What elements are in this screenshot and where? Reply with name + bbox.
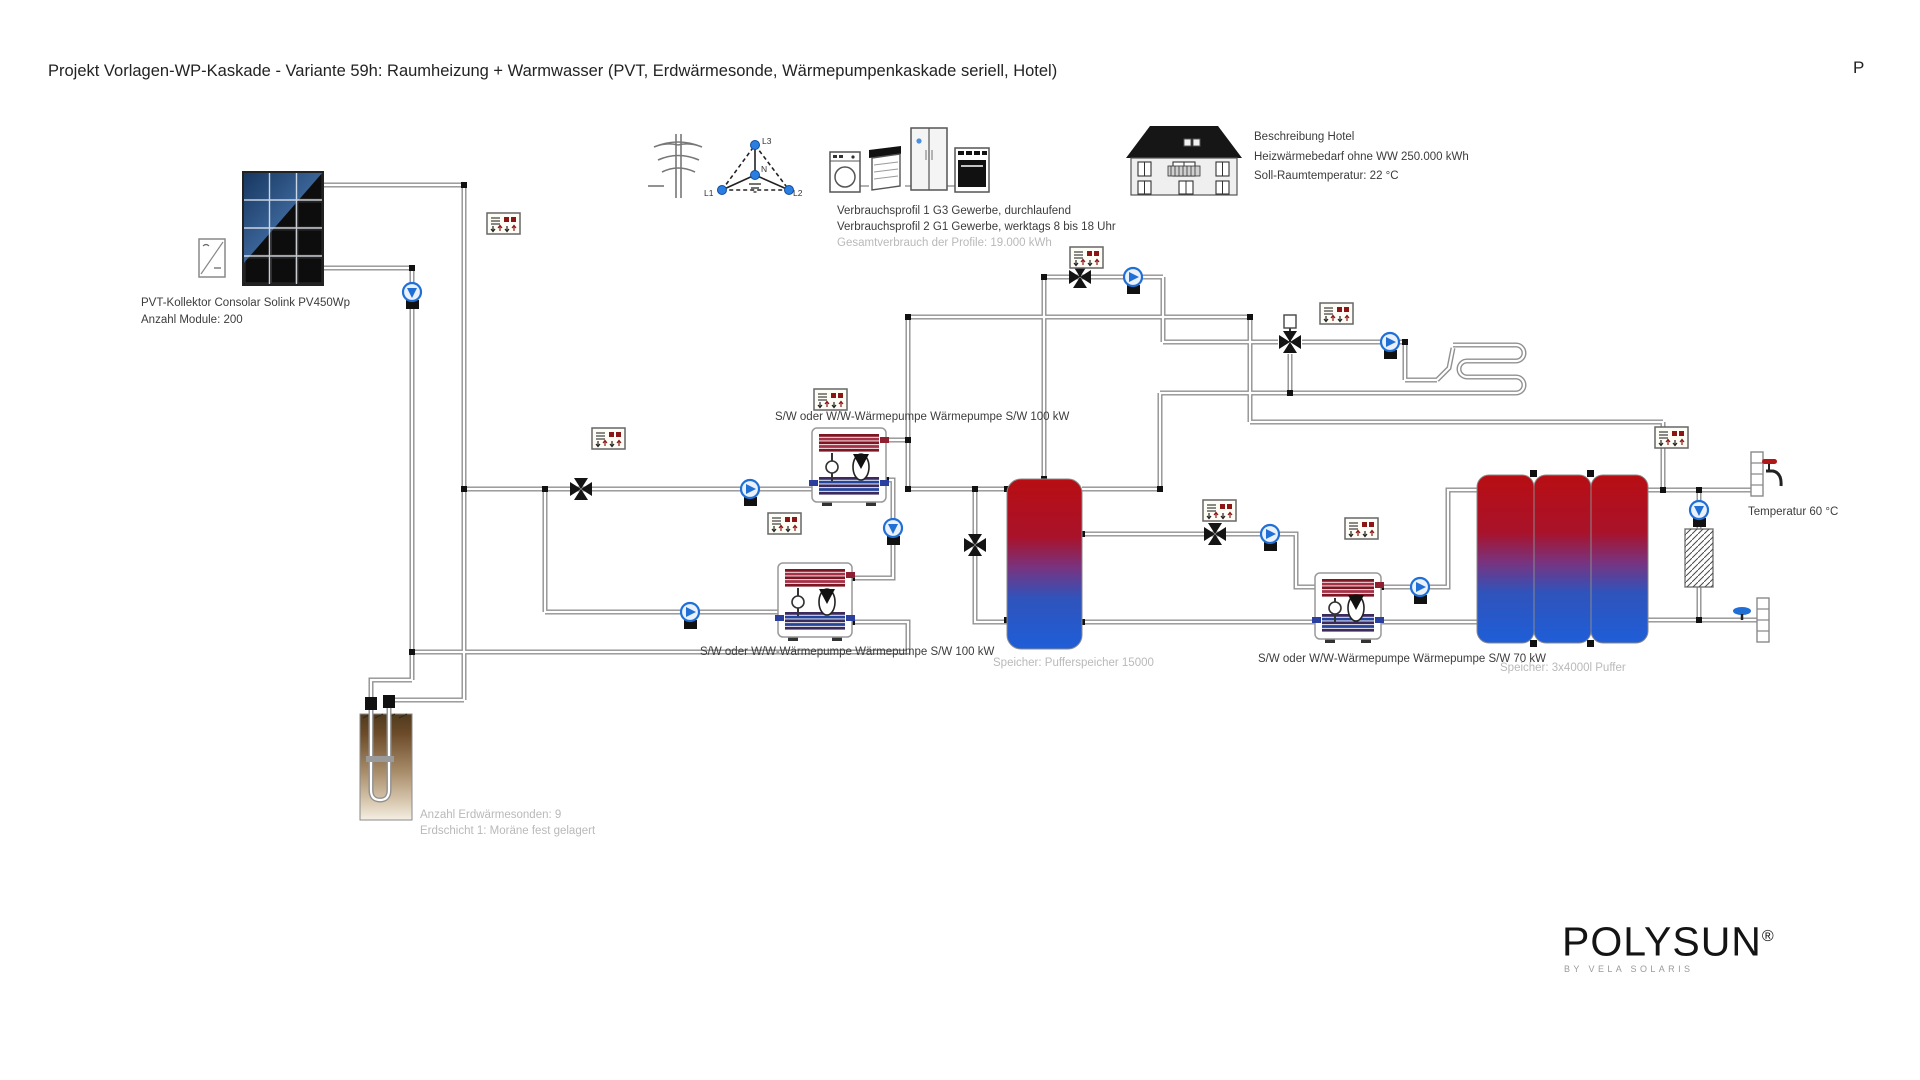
condenser-coil xyxy=(785,569,845,572)
evaporator-coil xyxy=(785,619,845,622)
dhw-temperature-label: Temperatur 60 °C xyxy=(1748,505,1838,520)
inverter-icon[interactable] xyxy=(199,239,225,277)
oven-icon[interactable] xyxy=(955,148,989,192)
controller-icon[interactable] xyxy=(1655,427,1688,448)
pipe-junction xyxy=(461,182,467,188)
pump-icon[interactable] xyxy=(1411,578,1429,604)
heat-pump-2-icon[interactable] xyxy=(775,563,855,641)
controller-icon[interactable] xyxy=(1320,303,1353,324)
tank2-label: Speicher: 3x4000l Puffer xyxy=(1500,661,1626,676)
evaporator-coil xyxy=(785,627,845,630)
consumption-profile-line2: Verbrauchsprofil 2 G1 Gewerbe, werktags … xyxy=(837,220,1116,235)
evaporator-coil xyxy=(1322,614,1374,617)
pump-icon[interactable] xyxy=(681,603,699,629)
consumption-profile-line3: Gesamtverbrauch der Profile: 19.000 kWh xyxy=(837,236,1052,251)
pipe-junction xyxy=(1247,314,1253,320)
pipe-junction xyxy=(409,265,415,271)
pipe-core xyxy=(1082,534,1315,587)
pv-cell xyxy=(298,230,322,255)
evaporator-coil xyxy=(819,488,879,491)
hotel-building-icon[interactable] xyxy=(1126,126,1242,195)
pipe-junction xyxy=(1402,339,1408,345)
pump-icon[interactable] xyxy=(1381,333,1399,359)
borehole-label-line2: Erdschicht 1: Moräne fest gelagert xyxy=(420,824,595,839)
borehole-icon[interactable] xyxy=(360,714,412,820)
evaporator-coil xyxy=(785,612,845,615)
pump-icon[interactable] xyxy=(1124,268,1142,294)
controller-icon[interactable] xyxy=(1070,247,1103,268)
hotel-description-line1: Beschreibung Hotel xyxy=(1254,130,1354,145)
hot-water-tap-icon[interactable] xyxy=(1751,452,1781,496)
mixing-valve-icon[interactable] xyxy=(964,534,986,556)
heat-pump-1-label: S/W oder W/W-Wärmepumpe Wärmepumpe S/W 1… xyxy=(775,410,1069,425)
pipe-junction xyxy=(461,486,467,492)
mixing-valve-icon[interactable] xyxy=(1204,523,1226,545)
cold-valve-handle[interactable] xyxy=(1733,607,1751,615)
tank1-label: Speicher: Pufferspeicher 15000 xyxy=(993,656,1154,671)
pv-cell xyxy=(272,230,296,255)
controller-icon[interactable] xyxy=(592,428,625,449)
heat-pump-3-icon[interactable] xyxy=(1312,573,1384,643)
pump-icon[interactable] xyxy=(403,283,421,309)
borehole-fitting-left xyxy=(365,697,377,710)
consumption-profile-line1: Verbrauchsprofil 1 G3 Gewerbe, durchlauf… xyxy=(837,204,1071,219)
expansion-valve-icon xyxy=(792,596,804,608)
pipe-junction xyxy=(1287,390,1293,396)
controller-icon[interactable] xyxy=(768,513,801,534)
label-n: N xyxy=(761,164,767,174)
pipe-junction xyxy=(542,486,548,492)
borehole-label-line1: Anzahl Erdwärmesonden: 9 xyxy=(420,808,561,823)
condenser-coil xyxy=(819,438,879,441)
condenser-coil xyxy=(785,573,845,576)
pump-icon[interactable] xyxy=(741,480,759,506)
buffer-tank-3x4000-icon[interactable] xyxy=(1477,470,1648,647)
hot-tap-handle[interactable] xyxy=(1762,459,1777,464)
hotel-description-line3: Soll-Raumtemperatur: 22 °C xyxy=(1254,169,1399,184)
expansion-valve-icon xyxy=(826,461,838,473)
evaporator-coil xyxy=(819,492,879,495)
heat-pump-1-icon[interactable] xyxy=(809,428,889,506)
pv-cell xyxy=(298,202,322,227)
evaporator-coil xyxy=(785,616,845,619)
mixing-valve-icon[interactable] xyxy=(1279,315,1301,353)
borehole-fitting-right xyxy=(383,695,395,708)
pump-icon[interactable] xyxy=(1261,525,1279,551)
polysun-logo: POLYSUN® BY VELA SOLARIS xyxy=(1562,916,1775,974)
pipe-core xyxy=(1381,490,1477,587)
pvt-collector-icon[interactable] xyxy=(243,172,323,285)
pipe xyxy=(1443,345,1524,393)
pipe-junction xyxy=(1696,617,1702,623)
pipe-junction xyxy=(905,486,911,492)
grid-phase-triangle-icon[interactable]: L3 N L1 L2 xyxy=(704,136,803,198)
pipe-junction xyxy=(972,486,978,492)
evaporator-coil xyxy=(819,481,879,484)
evaporator-coil xyxy=(1322,625,1374,628)
controller-icon[interactable] xyxy=(487,213,520,234)
pipe-junction xyxy=(1696,487,1702,493)
pipe xyxy=(1381,490,1477,587)
pipe-junction xyxy=(905,437,911,443)
pump-icon[interactable] xyxy=(884,519,902,545)
pvt-label-line1: PVT-Kollektor Consolar Solink PV450Wp xyxy=(141,296,350,311)
fridge-icon[interactable] xyxy=(911,128,947,190)
evaporator-coil xyxy=(819,484,879,487)
condenser-coil xyxy=(785,584,845,587)
pipe-junction xyxy=(1660,487,1666,493)
heat-pump-2-label: S/W oder W/W-Wärmepumpe Wärmepumpe S/W 1… xyxy=(700,645,994,660)
expansion-valve-icon xyxy=(1329,602,1341,614)
borehole-clamp xyxy=(366,756,394,762)
pv-cell xyxy=(245,258,269,283)
label-l2: L2 xyxy=(793,188,803,198)
condenser-coil xyxy=(1322,583,1374,586)
balcony xyxy=(1168,166,1200,176)
pipe-junction xyxy=(1157,486,1163,492)
controller-icon[interactable] xyxy=(1345,518,1378,539)
mixing-valve-icon[interactable] xyxy=(570,478,592,500)
condenser-coil xyxy=(819,449,879,452)
power-grid-pylon-icon[interactable] xyxy=(648,134,702,198)
buffer-tank-15000-icon[interactable] xyxy=(1007,479,1082,649)
pipe-junction xyxy=(409,649,415,655)
pvt-label-line2: Anzahl Module: 200 xyxy=(141,313,243,328)
pump-icon[interactable] xyxy=(1690,501,1708,527)
condenser-coil xyxy=(819,441,879,444)
label-l1: L1 xyxy=(704,188,714,198)
evaporator-coil xyxy=(1322,621,1374,624)
hotel-description-line2: Heizwärmebedarf ohne WW 250.000 kWh xyxy=(1254,150,1469,165)
diagram-canvas: Projekt Vorlagen-WP-Kaskade - Variante 5… xyxy=(0,0,1920,1080)
washing-machine-icon[interactable] xyxy=(830,152,860,192)
evaporator-coil xyxy=(819,477,879,480)
evaporator-coil xyxy=(1322,629,1374,632)
condenser-coil xyxy=(1322,586,1374,589)
dishwasher-icon[interactable] xyxy=(869,146,901,190)
condenser-coil xyxy=(1322,579,1374,582)
condenser-coil xyxy=(819,445,879,448)
pipe xyxy=(1082,534,1315,587)
evaporator-coil xyxy=(1322,618,1374,621)
appliances-icon[interactable] xyxy=(830,128,989,192)
logo-text: POLYSUN xyxy=(1562,919,1762,965)
logo-subtitle: BY VELA SOLARIS xyxy=(1564,964,1775,974)
condenser-coil xyxy=(785,580,845,583)
condenser-coil xyxy=(1322,590,1374,593)
evaporator-coil xyxy=(785,623,845,626)
logo-reg-mark: ® xyxy=(1762,928,1775,945)
pipe-junction xyxy=(1041,274,1047,280)
condenser-coil xyxy=(785,576,845,579)
controller-icon[interactable] xyxy=(1203,500,1236,521)
pipe-junction xyxy=(905,314,911,320)
pipe-core xyxy=(1443,345,1524,393)
condenser-coil xyxy=(819,434,879,437)
condenser-coil xyxy=(1322,594,1374,597)
label-l3: L3 xyxy=(762,136,772,146)
pv-cell xyxy=(298,258,322,283)
pv-cell xyxy=(272,258,296,283)
heat-exchanger-icon[interactable] xyxy=(1685,529,1713,587)
controller-icon[interactable] xyxy=(814,389,847,410)
